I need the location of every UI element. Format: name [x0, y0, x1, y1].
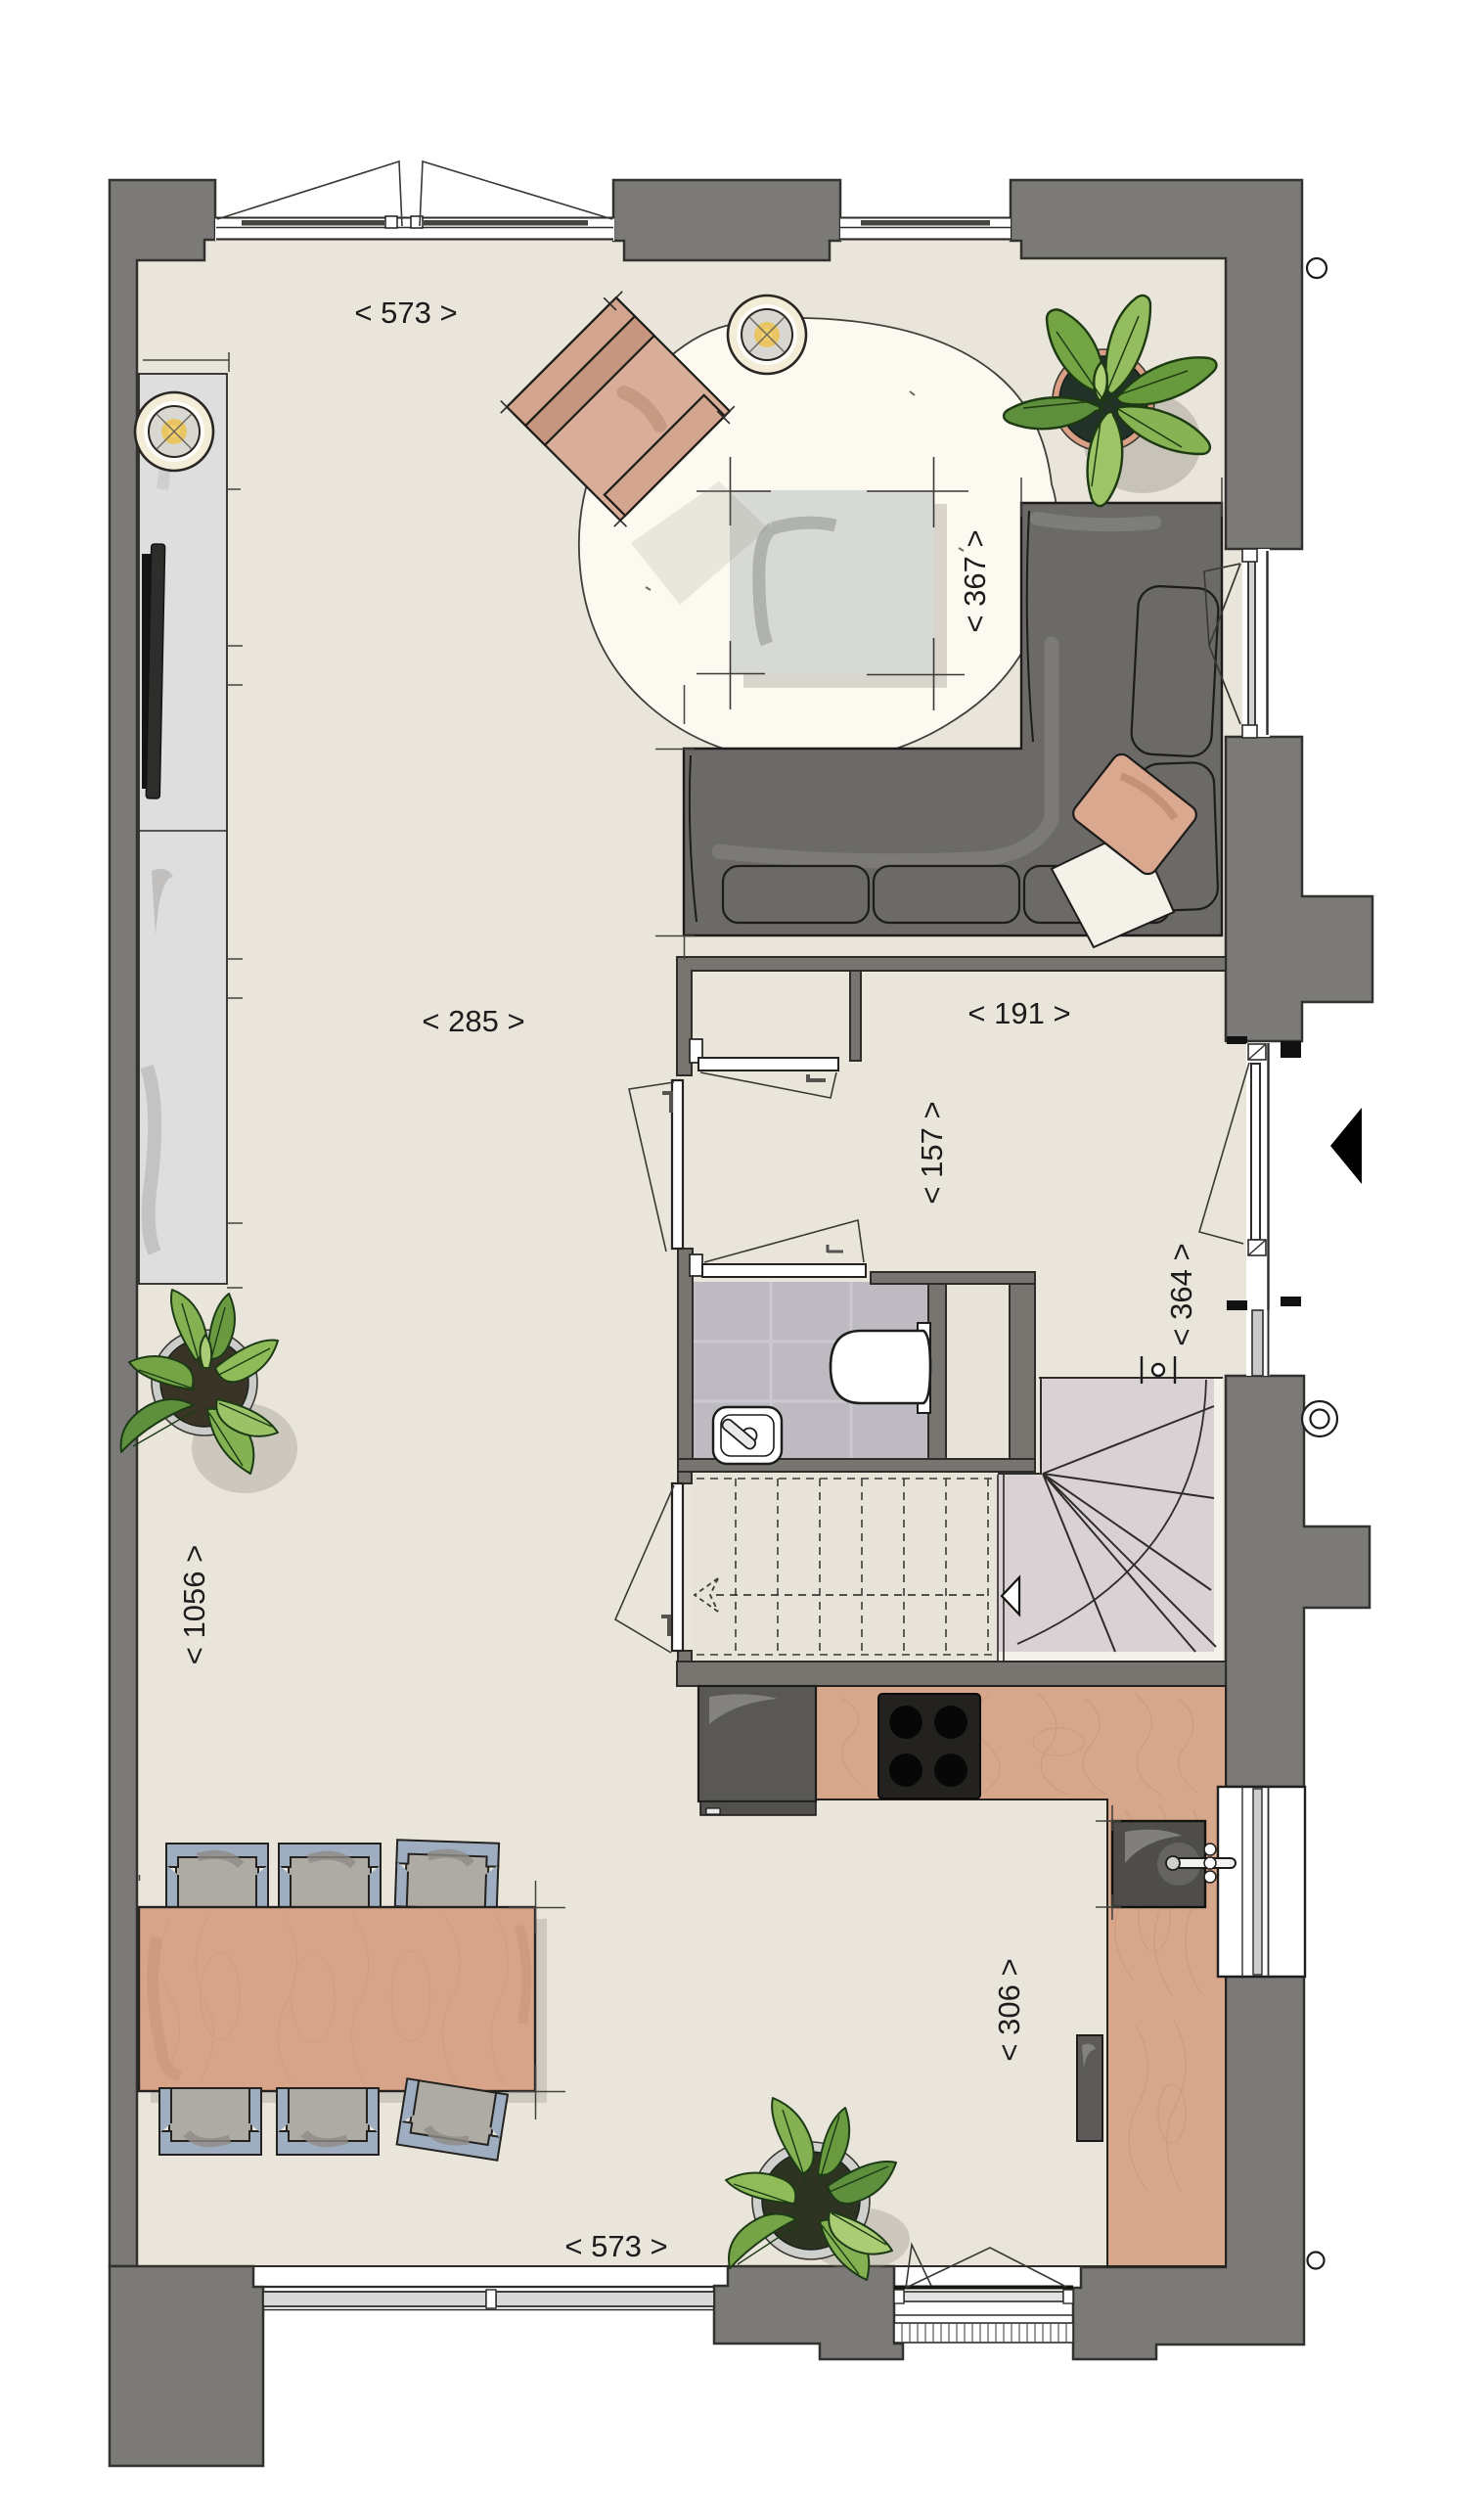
- svg-text:< 573 >: < 573 >: [354, 296, 457, 330]
- svg-text:< 1056 >: < 1056 >: [177, 1545, 211, 1664]
- svg-text:< 364 >: < 364 >: [1164, 1243, 1198, 1345]
- svg-text:< 285 >: < 285 >: [422, 1004, 524, 1038]
- svg-text:< 191 >: < 191 >: [967, 996, 1070, 1030]
- svg-text:< 306 >: < 306 >: [992, 1958, 1026, 2061]
- svg-text:< 573 >: < 573 >: [564, 2229, 667, 2263]
- svg-text:< 367 >: < 367 >: [958, 529, 992, 632]
- svg-text:< 157 >: < 157 >: [915, 1101, 949, 1204]
